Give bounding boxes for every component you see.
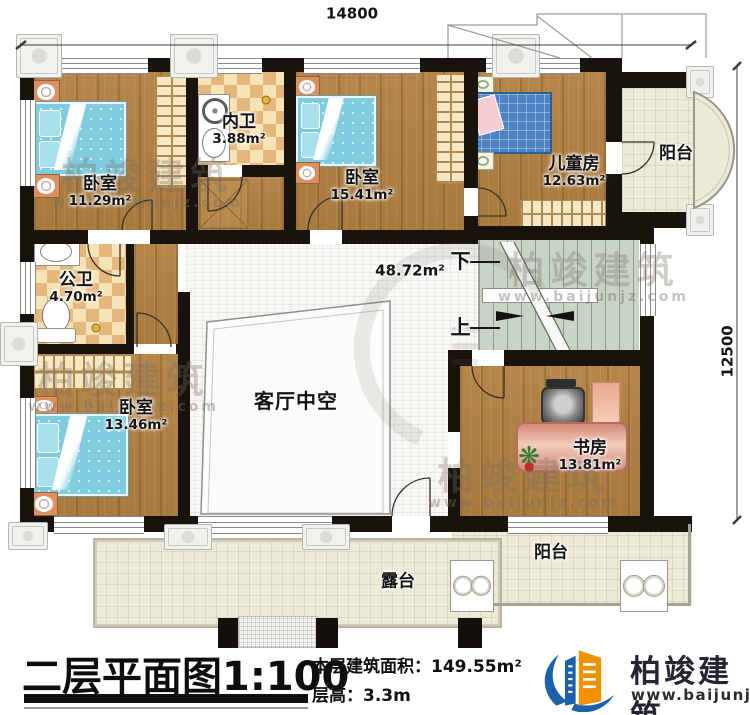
room-name: 露台 <box>381 572 415 591</box>
bedroom2-label: 卧室 15.41m² <box>331 169 394 203</box>
floor-area-text: 本层建筑面积：149.55m² <box>312 652 522 677</box>
room-area: 4.70m² <box>49 290 102 305</box>
dimension-top-label: 14800 <box>326 6 378 23</box>
stairs-down-text: 下 <box>451 250 472 272</box>
inner-bath-label: 内卫 3.88m² <box>212 113 265 147</box>
door-arc <box>478 188 506 216</box>
room-name: 卧室 <box>105 399 168 418</box>
brand-name: 柏竣建筑 <box>630 646 748 715</box>
room-area: 11.29m² <box>69 194 132 209</box>
room-area: 15.41m² <box>331 188 394 203</box>
hall-area-label: 48.72m² <box>375 263 445 280</box>
stairs-up-label: 上 <box>451 316 472 338</box>
room-name: 卧室 <box>331 169 394 188</box>
bedroom3-label: 卧室 13.46m² <box>105 399 168 433</box>
balcony-right-label: 阳台 <box>659 144 693 163</box>
stairs-down-label: 下 <box>451 250 472 272</box>
room-name: 公卫 <box>49 271 102 290</box>
room-area: 3.88m² <box>212 132 265 147</box>
terrace-label: 露台 <box>381 572 415 591</box>
balcony-arc <box>694 92 734 208</box>
room-area: 12.63m² <box>543 174 606 189</box>
public-bath-label: 公卫 4.70m² <box>49 271 102 305</box>
roof-outline <box>448 14 706 58</box>
stairs-up-text: 上 <box>451 316 472 338</box>
living-void-label: 客厅中空 <box>254 390 338 412</box>
title-underline-thin <box>24 707 308 709</box>
plan-linework <box>0 0 750 715</box>
door-arc <box>137 313 171 347</box>
room-name: 儿童房 <box>543 155 606 174</box>
balcony-bottom-label: 阳台 <box>534 543 568 562</box>
room-name: 阳台 <box>659 144 693 163</box>
brand-url: www.baijunjz.com <box>631 686 750 704</box>
door-arc <box>622 142 654 174</box>
room-area: 13.46m² <box>105 418 168 433</box>
room-name: 客厅中空 <box>254 390 338 412</box>
door-arc <box>472 366 504 398</box>
title-underline <box>24 694 308 703</box>
room-area: 13.81m² <box>559 458 622 473</box>
door-arc <box>392 478 430 516</box>
logo-swoosh-left <box>545 655 567 706</box>
logo-tower-blue <box>565 656 576 706</box>
brand-logo: 柏竣建筑 www.baijunjz.com <box>538 644 748 712</box>
study-label: 书房 13.81m² <box>559 439 622 473</box>
floor-plan-page: ❋● <box>0 0 750 715</box>
room-name: 书房 <box>559 439 622 458</box>
brand-logo-icon <box>538 644 626 712</box>
room-name: 阳台 <box>534 543 568 562</box>
room-name: 卧室 <box>69 175 132 194</box>
dimension-right-label: 12500 <box>720 325 737 377</box>
floor-height-text: 层高：3.3m <box>312 681 411 706</box>
bedroom1-label: 卧室 11.29m² <box>69 175 132 209</box>
room-area: 48.72m² <box>375 263 445 280</box>
room-name: 内卫 <box>212 113 265 132</box>
kids-room-label: 儿童房 12.63m² <box>543 155 606 189</box>
